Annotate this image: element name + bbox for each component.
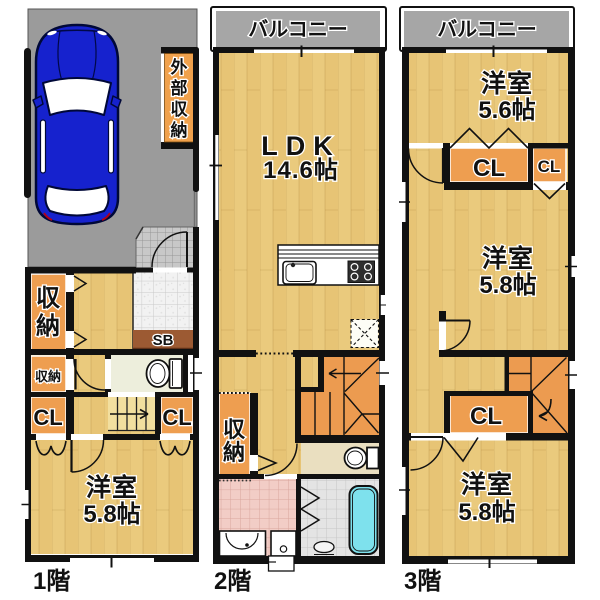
svg-text:収: 収	[223, 417, 246, 442]
svg-text:バルコニー: バルコニー	[437, 18, 537, 41]
svg-text:洋室: 洋室	[481, 69, 533, 98]
svg-text:収: 収	[171, 100, 189, 119]
svg-text:収: 収	[36, 285, 61, 312]
svg-text:5.8帖: 5.8帖	[479, 272, 536, 299]
svg-text:5.8帖: 5.8帖	[83, 501, 140, 528]
svg-text:バルコニー: バルコニー	[248, 18, 348, 41]
svg-text:SB: SB	[153, 332, 174, 349]
svg-text:2階: 2階	[214, 568, 251, 595]
svg-text:CL: CL	[470, 403, 502, 430]
svg-text:1階: 1階	[33, 568, 70, 595]
svg-text:洋室: 洋室	[482, 244, 534, 273]
svg-text:納: 納	[171, 120, 188, 140]
svg-text:3階: 3階	[404, 568, 441, 595]
svg-text:外: 外	[171, 57, 188, 77]
svg-text:部: 部	[171, 78, 188, 98]
svg-text:洋室: 洋室	[86, 473, 138, 502]
svg-text:洋室: 洋室	[461, 470, 513, 499]
svg-text:5.8帖: 5.8帖	[458, 499, 515, 526]
svg-text:納: 納	[36, 312, 60, 340]
svg-text:5.6帖: 5.6帖	[478, 97, 535, 124]
svg-text:CL: CL	[162, 405, 191, 430]
svg-text:CL: CL	[473, 155, 505, 182]
svg-text:CL: CL	[538, 157, 561, 176]
svg-text:14.6帖: 14.6帖	[263, 157, 339, 184]
svg-text:納: 納	[223, 440, 245, 465]
svg-text:収納: 収納	[35, 369, 61, 384]
svg-text:CL: CL	[33, 405, 62, 430]
